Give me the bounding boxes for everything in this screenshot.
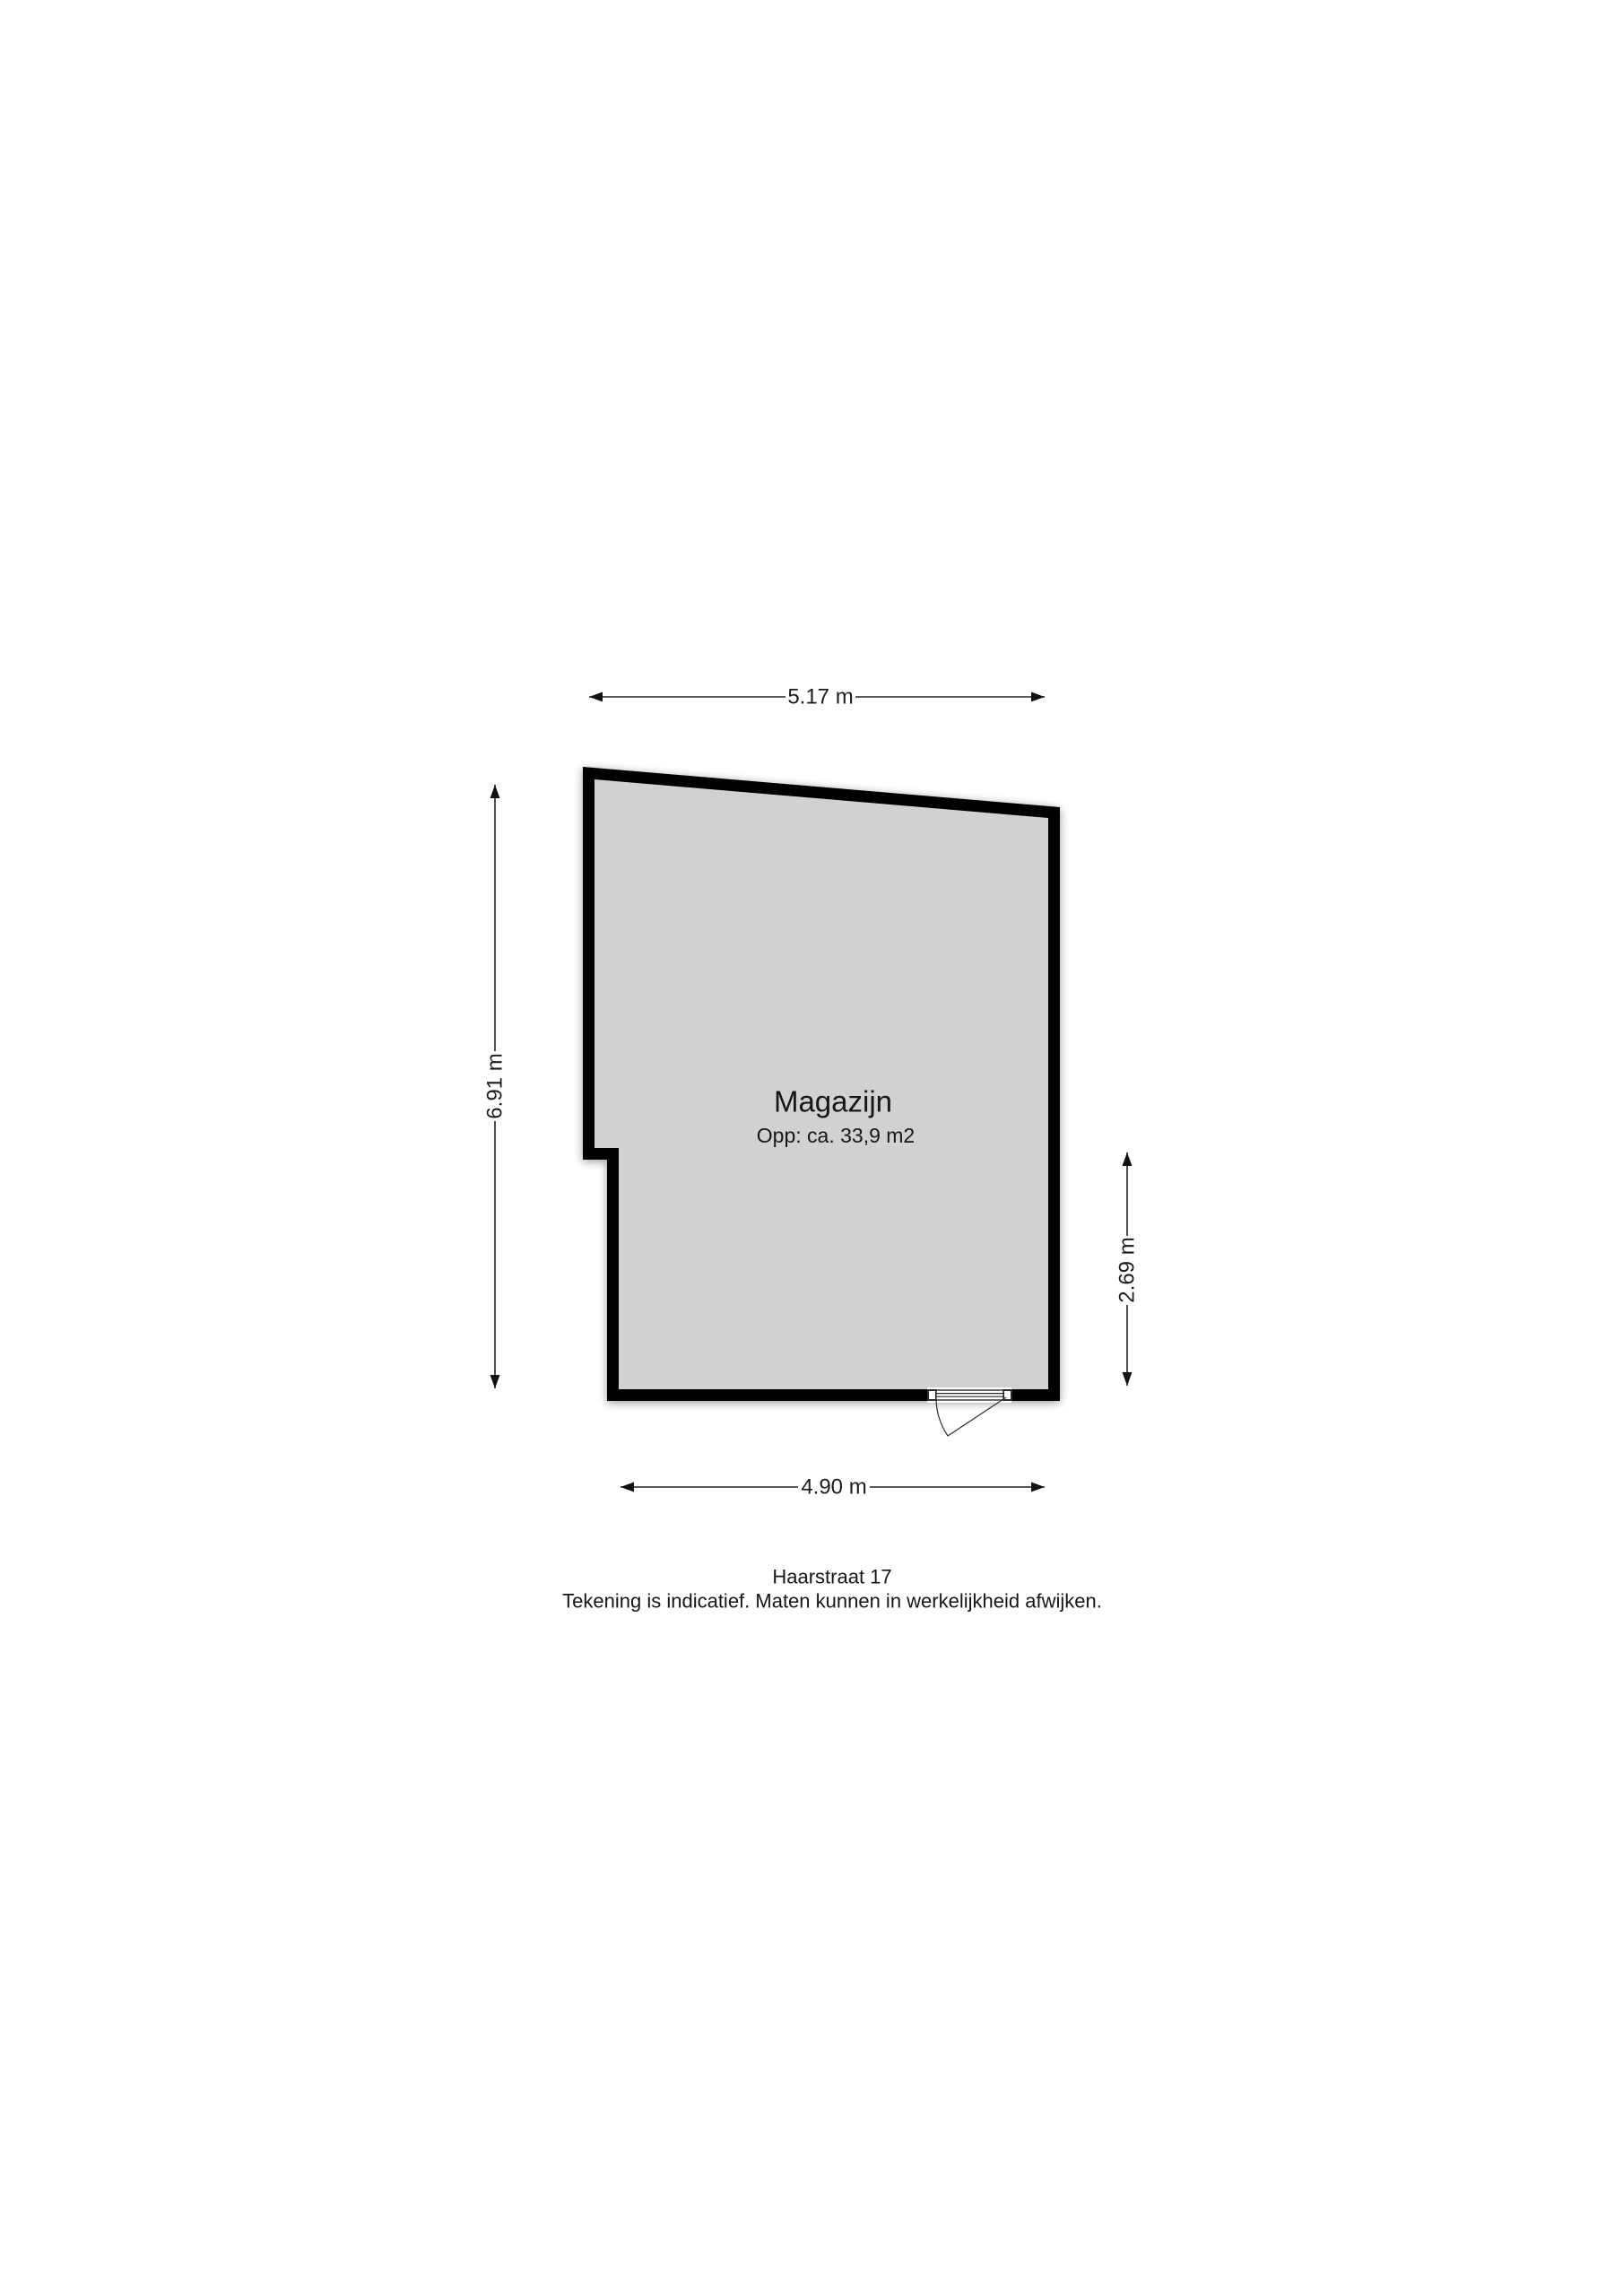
- dimension-right-label: 2.69 m: [1115, 1237, 1140, 1302]
- room-label: Magazijn Opp: ca. 33,9 m2: [757, 1085, 915, 1148]
- room-area-label: Opp: ca. 33,9 m2: [757, 1124, 915, 1147]
- building: [583, 767, 1060, 1401]
- dimension-bottom: 4.90 m: [621, 1475, 1045, 1500]
- footer-address: Haarstraat 17: [772, 1566, 891, 1588]
- arrow-left-icon: [589, 692, 603, 702]
- room-name: Magazijn: [774, 1085, 892, 1118]
- dimension-left: 6.91 m: [483, 785, 508, 1388]
- arrow-left-icon: [621, 1483, 634, 1492]
- footer: Haarstraat 17 Tekening is indicatief. Ma…: [562, 1566, 1102, 1613]
- footer-disclaimer: Tekening is indicatief. Maten kunnen in …: [562, 1590, 1102, 1613]
- door-leaf-open: [948, 1397, 1006, 1436]
- door-leaf-closed: [936, 1390, 1003, 1400]
- arrow-down-icon: [1123, 1372, 1133, 1386]
- dimension-left-label: 6.91 m: [483, 1053, 508, 1118]
- dimension-top: 5.17 m: [589, 685, 1045, 709]
- arrow-right-icon: [1031, 692, 1045, 702]
- floorplan-page: 5.17 m 6.91 m 2.69 m 4.90 m: [0, 0, 1623, 2296]
- arrow-up-icon: [490, 785, 500, 798]
- dimension-bottom-label: 4.90 m: [801, 1475, 866, 1500]
- door-swing-arc: [936, 1400, 948, 1436]
- door: [927, 1387, 1011, 1436]
- floorplan-drawing: 5.17 m 6.91 m 2.69 m 4.90 m: [0, 0, 1623, 2296]
- dimension-right: 2.69 m: [1115, 1152, 1140, 1386]
- dimension-top-label: 5.17 m: [787, 685, 853, 709]
- arrow-right-icon: [1031, 1483, 1045, 1492]
- arrow-up-icon: [1123, 1152, 1133, 1166]
- arrow-down-icon: [490, 1375, 500, 1388]
- door-jamb-left: [928, 1390, 936, 1400]
